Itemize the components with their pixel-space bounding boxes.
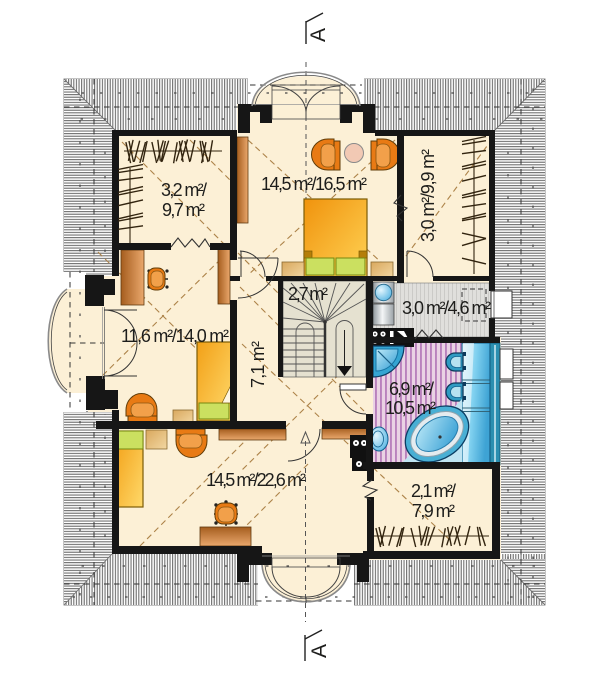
svg-text:2,7 m²: 2,7 m² [288, 284, 328, 304]
svg-text:14,5 m²/16,5 m²: 14,5 m²/16,5 m² [261, 174, 367, 194]
svg-text:A: A [307, 28, 330, 42]
svg-text:3,0 m²/4,6 m²: 3,0 m²/4,6 m² [402, 298, 491, 318]
svg-text:6,9 m²/: 6,9 m²/ [389, 379, 434, 399]
svg-text:14,5 m²/22,6 m²: 14,5 m²/22,6 m² [206, 470, 306, 490]
svg-text:2,1 m²/: 2,1 m²/ [411, 481, 456, 501]
svg-text:3,2 m²/: 3,2 m²/ [161, 180, 207, 200]
svg-text:7,1 m²: 7,1 m² [248, 341, 268, 388]
svg-text:11,6 m²/14,0 m²: 11,6 m²/14,0 m² [121, 326, 229, 346]
svg-text:A: A [308, 644, 331, 658]
svg-text:3,0 m²/9,9 m²: 3,0 m²/9,9 m² [418, 149, 438, 242]
svg-text:9,7 m²: 9,7 m² [162, 200, 205, 220]
svg-text:7,9 m²: 7,9 m² [412, 501, 455, 521]
svg-text:10,5 m²: 10,5 m² [385, 398, 436, 418]
